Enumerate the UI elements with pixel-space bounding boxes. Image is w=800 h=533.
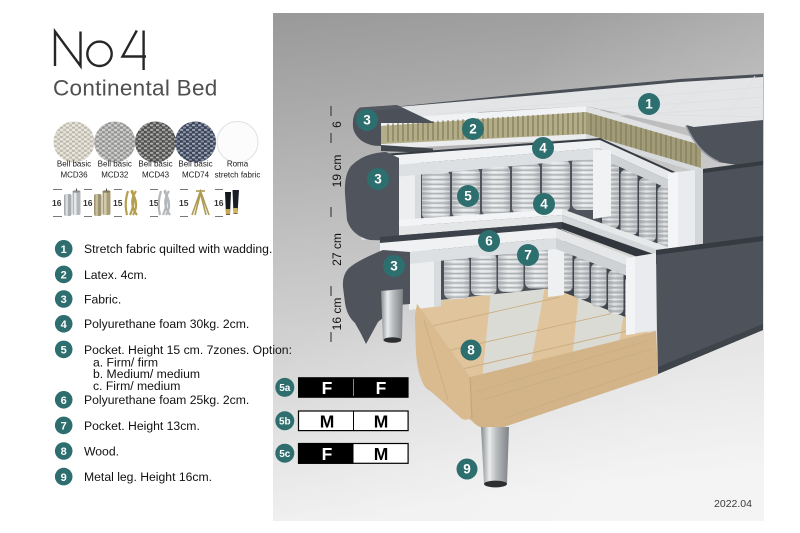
svg-text:M: M (374, 444, 389, 464)
svg-text:9: 9 (61, 472, 67, 484)
svg-text:8: 8 (61, 446, 67, 458)
svg-text:F: F (376, 378, 387, 398)
svg-text:Continental Bed: Continental Bed (53, 76, 218, 101)
svg-text:Latex. 4cm.: Latex. 4cm. (84, 268, 147, 282)
svg-text:MCD32: MCD32 (101, 171, 129, 180)
svg-text:5: 5 (61, 345, 67, 357)
svg-text:Fabric.: Fabric. (84, 292, 121, 306)
svg-text:27 cm: 27 cm (330, 233, 344, 266)
svg-text:F: F (322, 378, 333, 398)
svg-text:3: 3 (363, 113, 371, 128)
svg-text:M: M (374, 411, 389, 431)
svg-text:Bell basic: Bell basic (178, 160, 212, 169)
svg-text:2: 2 (61, 270, 67, 282)
svg-text:stretch fabric: stretch fabric (215, 171, 261, 180)
svg-text:6: 6 (61, 395, 67, 407)
svg-text:MCD74: MCD74 (182, 171, 210, 180)
svg-text:Wood.: Wood. (84, 444, 119, 458)
svg-text:Bell basic: Bell basic (138, 160, 172, 169)
svg-text:Pocket. Height 13cm.: Pocket. Height 13cm. (84, 419, 200, 433)
svg-text:Bell basic: Bell basic (98, 160, 132, 169)
svg-text:6: 6 (485, 234, 493, 249)
svg-text:2: 2 (469, 122, 477, 137)
svg-text:1: 1 (61, 244, 67, 256)
svg-text:MCD43: MCD43 (142, 171, 170, 180)
svg-text:c. Firm/ medium: c. Firm/ medium (93, 379, 180, 393)
svg-text:Polyurethane foam 25kg. 2cm.: Polyurethane foam 25kg. 2cm. (84, 393, 249, 407)
svg-text:5c: 5c (279, 449, 291, 460)
svg-text:16: 16 (214, 198, 224, 208)
svg-text:Metal leg. Height 16cm.: Metal leg. Height 16cm. (84, 470, 212, 484)
svg-text:1: 1 (645, 97, 653, 112)
svg-text:15: 15 (179, 198, 189, 208)
svg-text:15: 15 (149, 198, 159, 208)
svg-text:2022.04: 2022.04 (714, 498, 752, 510)
svg-text:Polyurethane foam 30kg. 2cm.: Polyurethane foam 30kg. 2cm. (84, 317, 249, 331)
svg-text:6: 6 (330, 121, 344, 128)
svg-text:8: 8 (467, 343, 475, 358)
svg-text:9: 9 (463, 462, 471, 477)
svg-text:3: 3 (61, 294, 67, 306)
svg-text:4: 4 (540, 197, 548, 212)
svg-text:16 cm: 16 cm (330, 298, 344, 331)
svg-text:7: 7 (524, 248, 532, 263)
svg-text:7: 7 (61, 421, 67, 433)
svg-text:5: 5 (464, 189, 472, 204)
svg-text:3: 3 (374, 172, 382, 187)
svg-text:4: 4 (61, 319, 68, 331)
svg-text:5a: 5a (279, 383, 291, 394)
svg-text:F: F (322, 444, 333, 464)
svg-text:Stretch fabric quilted with wa: Stretch fabric quilted with wadding. (84, 242, 272, 256)
svg-text:19 cm: 19 cm (330, 155, 344, 188)
svg-text:M: M (320, 411, 335, 431)
svg-text:16: 16 (83, 198, 93, 208)
svg-text:16: 16 (52, 198, 62, 208)
svg-text:MCD36: MCD36 (60, 171, 88, 180)
svg-text:3: 3 (390, 259, 398, 274)
svg-text:4: 4 (539, 141, 547, 156)
svg-text:5b: 5b (279, 416, 291, 427)
svg-text:15: 15 (113, 198, 123, 208)
svg-text:Roma: Roma (227, 160, 249, 169)
svg-text:Bell basic: Bell basic (57, 160, 91, 169)
